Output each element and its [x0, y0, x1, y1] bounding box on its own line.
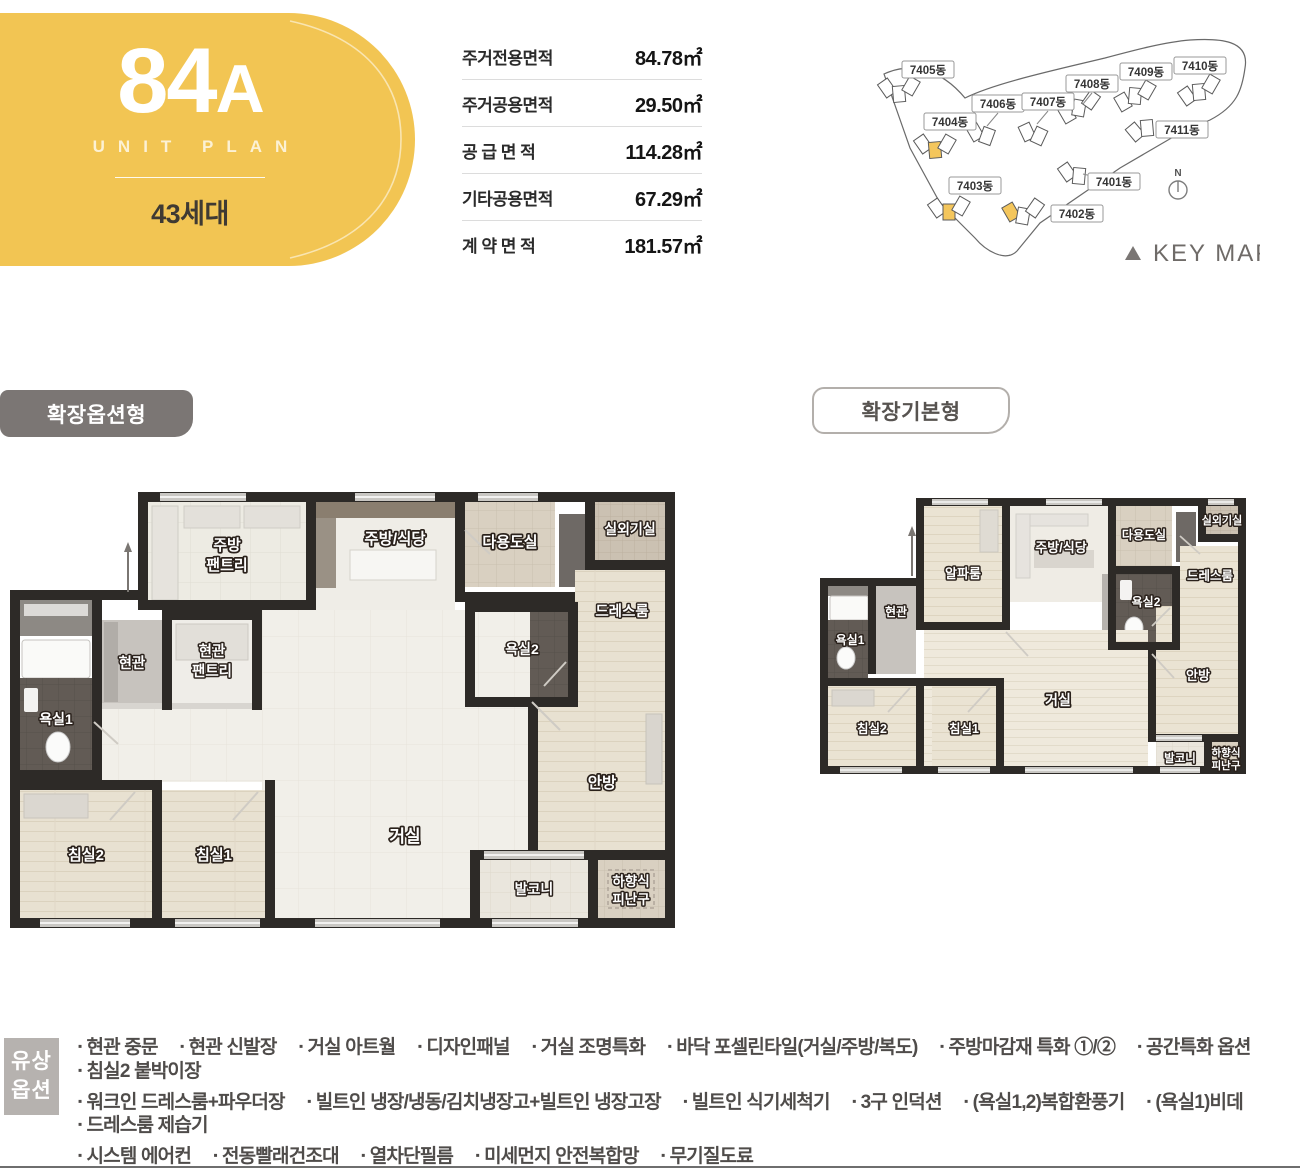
entrance-marker-icon [124, 542, 132, 592]
option-text: 공간특화 옵션 [1146, 1037, 1251, 1058]
bullet-icon: ▪ [361, 1148, 364, 1163]
option-item: ▪무기질도료 [661, 1145, 753, 1168]
room-label-bedroom1: 침실1 [196, 847, 232, 864]
option-text: 현관 신발장 [189, 1037, 277, 1058]
building-label: 7405동 [910, 64, 947, 77]
option-text: 현관 중문 [86, 1037, 157, 1058]
building-label: 7407동 [1030, 96, 1067, 109]
key-map-svg: 7405동 7406동 7407동 7408동 7409동 7410동 7411… [865, 28, 1260, 276]
unit-number: 84 [117, 30, 215, 132]
option-item: ▪거실 아트월 [299, 1036, 395, 1060]
bullet-icon: ▪ [476, 1148, 479, 1163]
unit-plan-subtitle: UNIT PLAN [55, 137, 325, 157]
area-value: 29.50㎡ [635, 89, 702, 118]
bullet-icon: ▪ [532, 1039, 535, 1054]
room-label-living: 거실 [389, 827, 420, 846]
option-text: 주방마감재 특화 ①/② [948, 1037, 1115, 1058]
room-label-bath2: 욕실2 [505, 641, 539, 657]
room-label-kitchen-dining: 주방/식당 [364, 530, 426, 548]
option-text: 빌트인 식기세척기 [692, 1092, 830, 1113]
option-item: ▪열차단필름 [361, 1145, 453, 1168]
paid-options-heading: 유상 옵션 [4, 1038, 59, 1115]
floor-plan-expanded-basic: 알파룸 주방/식당 다용도실 실외기실 드레스룸 욕실2 현관 욕실1 침실2 … [820, 490, 1254, 782]
building-label: 7403동 [957, 180, 994, 193]
option-item: ▪현관 중문 [78, 1036, 158, 1060]
bullet-icon: ▪ [964, 1094, 967, 1109]
bullet-icon: ▪ [299, 1039, 302, 1054]
room-label-escape: 피난구 [612, 891, 649, 907]
room-label-entry: 현관 [885, 604, 907, 619]
paid-options-list: ▪현관 중문 ▪현관 신발장 ▪거실 아트월 ▪디자인패널 ▪거실 조명특화 ▪… [78, 1036, 1300, 1168]
room-label-living: 거실 [1045, 692, 1071, 708]
table-row: 주거공용면적 29.50㎡ [462, 80, 702, 127]
option-item: ▪3구 인덕션 [852, 1091, 941, 1115]
option-item: ▪공간특화 옵션 [1138, 1036, 1251, 1060]
area-table: 주거전용면적 84.78㎡ 주거공용면적 29.50㎡ 공 급 면 적 114.… [462, 33, 702, 268]
table-row: 공 급 면 적 114.28㎡ [462, 127, 702, 174]
option-text: 시스템 에어컨 [86, 1146, 191, 1167]
option-text: 침실2 붙박이장 [86, 1061, 200, 1082]
option-item: ▪침실2 붙박이장 [78, 1060, 201, 1084]
tab-expanded-option[interactable]: 확장옵션형 [0, 390, 193, 437]
paid-options-section: 유상 옵션 ▪현관 중문 ▪현관 신발장 ▪거실 아트월 ▪디자인패널 ▪거실 … [0, 1036, 1300, 1168]
option-item: ▪현관 신발장 [180, 1036, 276, 1060]
room-label-bedroom2: 침실2 [68, 847, 104, 864]
bullet-icon: ▪ [78, 1039, 81, 1054]
room-label-bath2: 욕실2 [1132, 594, 1161, 609]
badge-divider [115, 177, 265, 178]
option-text: (욕실1)비데 [1155, 1092, 1243, 1113]
option-item: ▪드레스룸 제습기 [78, 1114, 208, 1138]
bullet-icon: ▪ [940, 1039, 943, 1054]
bullet-icon: ▪ [180, 1039, 183, 1054]
building-label: 7409동 [1128, 66, 1165, 79]
building-label: 7408동 [1074, 78, 1111, 91]
paid-options-heading-line: 옵션 [11, 1077, 52, 1105]
building-label: 7404동 [932, 116, 969, 129]
bullet-icon: ▪ [307, 1094, 310, 1109]
room-label-entry: 현관 [119, 655, 146, 672]
room-label-master: 안방 [588, 774, 617, 792]
option-text: 빌트인 냉장/냉동/김치냉장고+빌트인 냉장고장 [316, 1092, 661, 1113]
room-label-bedroom2: 침실2 [857, 721, 887, 736]
unit-code: 84A [55, 35, 325, 127]
bullet-icon: ▪ [1138, 1039, 1141, 1054]
area-label: 기타공용면적 [462, 185, 553, 210]
option-item: ▪시스템 에어컨 [78, 1145, 191, 1168]
room-label-kitchen-pantry: 주방 [213, 536, 241, 554]
building-label: 7406동 [980, 98, 1017, 111]
room-label-outdoor-unit: 실외기실 [1202, 513, 1242, 527]
option-item: ▪(욕실1,2)복합환풍기 [964, 1091, 1124, 1115]
option-item: ▪바닥 포셀린타일(거실/주방/복도) [668, 1036, 918, 1060]
unit-variant: A [216, 51, 263, 127]
area-label: 주거전용면적 [462, 44, 553, 69]
unit-badge: 84A UNIT PLAN 43세대 [0, 13, 415, 266]
option-text: 디자인패널 [426, 1037, 509, 1058]
options-line: ▪현관 중문 ▪현관 신발장 ▪거실 아트월 ▪디자인패널 ▪거실 조명특화 ▪… [78, 1036, 1300, 1084]
room-label-escape: 하향식 [1212, 746, 1241, 759]
option-text: 전동빨래건조대 [222, 1146, 339, 1167]
keymap-caption-text: KEY MAP [1153, 240, 1260, 267]
option-text: 열차단필름 [370, 1146, 453, 1167]
option-text: 미세먼지 안전복합망 [484, 1146, 639, 1167]
room-label-escape: 피난구 [1212, 759, 1241, 772]
area-value: 67.29㎡ [635, 183, 702, 212]
building-label: 7401동 [1096, 176, 1133, 189]
option-item: ▪미세먼지 안전복합망 [476, 1145, 639, 1168]
option-item: ▪빌트인 냉장/냉동/김치냉장고+빌트인 냉장고장 [307, 1091, 661, 1115]
room-label-dress-room: 드레스룸 [595, 603, 648, 620]
households-count: 43세대 [55, 192, 325, 231]
key-map: 7405동 7406동 7407동 7408동 7409동 7410동 7411… [865, 28, 1260, 281]
options-line: ▪시스템 에어컨 ▪전동빨래건조대 ▪열차단필름 ▪미세먼지 안전복합망 ▪무기… [78, 1145, 1300, 1168]
bullet-icon: ▪ [1147, 1094, 1150, 1109]
compass-icon: N [1169, 168, 1187, 199]
bullet-icon: ▪ [852, 1094, 855, 1109]
room-label-alpha: 알파룸 [945, 566, 981, 581]
area-label: 공 급 면 적 [462, 138, 535, 163]
table-row: 기타공용면적 67.29㎡ [462, 174, 702, 221]
bullet-icon: ▪ [661, 1148, 664, 1163]
compass-north-label: N [1174, 168, 1181, 179]
building-label: 7411동 [1164, 124, 1200, 137]
options-line: ▪워크인 드레스룸+파우더장 ▪빌트인 냉장/냉동/김치냉장고+빌트인 냉장고장… [78, 1091, 1300, 1139]
area-label: 계 약 면 적 [462, 232, 535, 257]
badge-content: 84A UNIT PLAN 43세대 [55, 35, 325, 231]
option-text: 거실 아트월 [307, 1037, 395, 1058]
option-item: ▪(욕실1)비데 [1147, 1091, 1243, 1115]
option-item: ▪디자인패널 [418, 1036, 510, 1060]
option-text: 바닥 포셀린타일(거실/주방/복도) [676, 1037, 917, 1058]
bullet-icon: ▪ [418, 1039, 421, 1054]
area-value: 181.57㎡ [624, 230, 702, 259]
keymap-caption: KEY MAP [1125, 240, 1260, 267]
room-label-entry-pantry: 팬트리 [192, 663, 232, 680]
bullet-icon: ▪ [683, 1094, 686, 1109]
bullet-icon: ▪ [78, 1094, 81, 1109]
option-text: 워크인 드레스룸+파우더장 [86, 1092, 284, 1113]
bullet-icon: ▪ [668, 1039, 671, 1054]
option-item: ▪빌트인 식기세척기 [683, 1091, 829, 1115]
room-label-outdoor-unit: 실외기실 [604, 521, 656, 537]
room-label-entry-pantry: 현관 [199, 643, 226, 660]
option-text: 드레스룸 제습기 [86, 1115, 207, 1136]
room-label-bath1: 욕실1 [836, 632, 865, 647]
option-item: ▪거실 조명특화 [532, 1036, 645, 1060]
room-label-bath1: 욕실1 [39, 711, 73, 727]
room-label-balcony: 발코니 [1164, 751, 1196, 765]
building-label: 7410동 [1182, 60, 1219, 73]
room-label-utility: 다용도실 [1122, 527, 1166, 542]
bullet-icon: ▪ [78, 1117, 81, 1132]
option-item: ▪전동빨래건조대 [214, 1145, 339, 1168]
room-label-bedroom1: 침실1 [949, 721, 979, 736]
option-text: (욕실1,2)복합환풍기 [973, 1092, 1125, 1113]
room-label-kitchen-pantry: 팬트리 [206, 557, 247, 574]
area-value: 84.78㎡ [635, 42, 702, 71]
option-text: 무기질도료 [670, 1146, 753, 1167]
floor-plan-expanded-option: 주방 팬트리 주방/식당 다용도실 실외기실 드레스룸 욕실2 현관 현관 팬트… [10, 492, 680, 928]
building-label: 7402동 [1059, 208, 1096, 221]
option-text: 거실 조명특화 [541, 1037, 646, 1058]
bullet-icon: ▪ [214, 1148, 217, 1163]
tab-expanded-basic[interactable]: 확장기본형 [812, 387, 1010, 434]
bullet-icon: ▪ [78, 1148, 81, 1163]
entrance-marker-icon [908, 526, 916, 576]
option-item: ▪워크인 드레스룸+파우더장 [78, 1091, 285, 1115]
bullet-icon: ▪ [78, 1063, 81, 1078]
table-row: 계 약 면 적 181.57㎡ [462, 221, 702, 268]
area-value: 114.28㎡ [625, 136, 702, 165]
room-label-balcony: 발코니 [515, 881, 554, 897]
keymap-triangle-icon [1125, 246, 1141, 260]
room-label-kitchen-dining: 주방/식당 [1035, 540, 1086, 555]
unit-plan-page: 84A UNIT PLAN 43세대 주거전용면적 84.78㎡ 주거공용면적 … [0, 0, 1300, 1168]
area-label: 주거공용면적 [462, 91, 553, 116]
room-label-utility: 다용도실 [482, 534, 537, 551]
option-item: ▪주방마감재 특화 ①/② [940, 1036, 1115, 1060]
paid-options-heading-line: 유상 [11, 1048, 52, 1076]
table-row: 주거전용면적 84.78㎡ [462, 33, 702, 80]
room-label-dress-room: 드레스룸 [1187, 568, 1234, 583]
room-label-master: 안방 [1186, 668, 1210, 683]
option-text: 3구 인덕션 [861, 1092, 942, 1113]
room-label-escape: 하향식 [612, 873, 649, 889]
